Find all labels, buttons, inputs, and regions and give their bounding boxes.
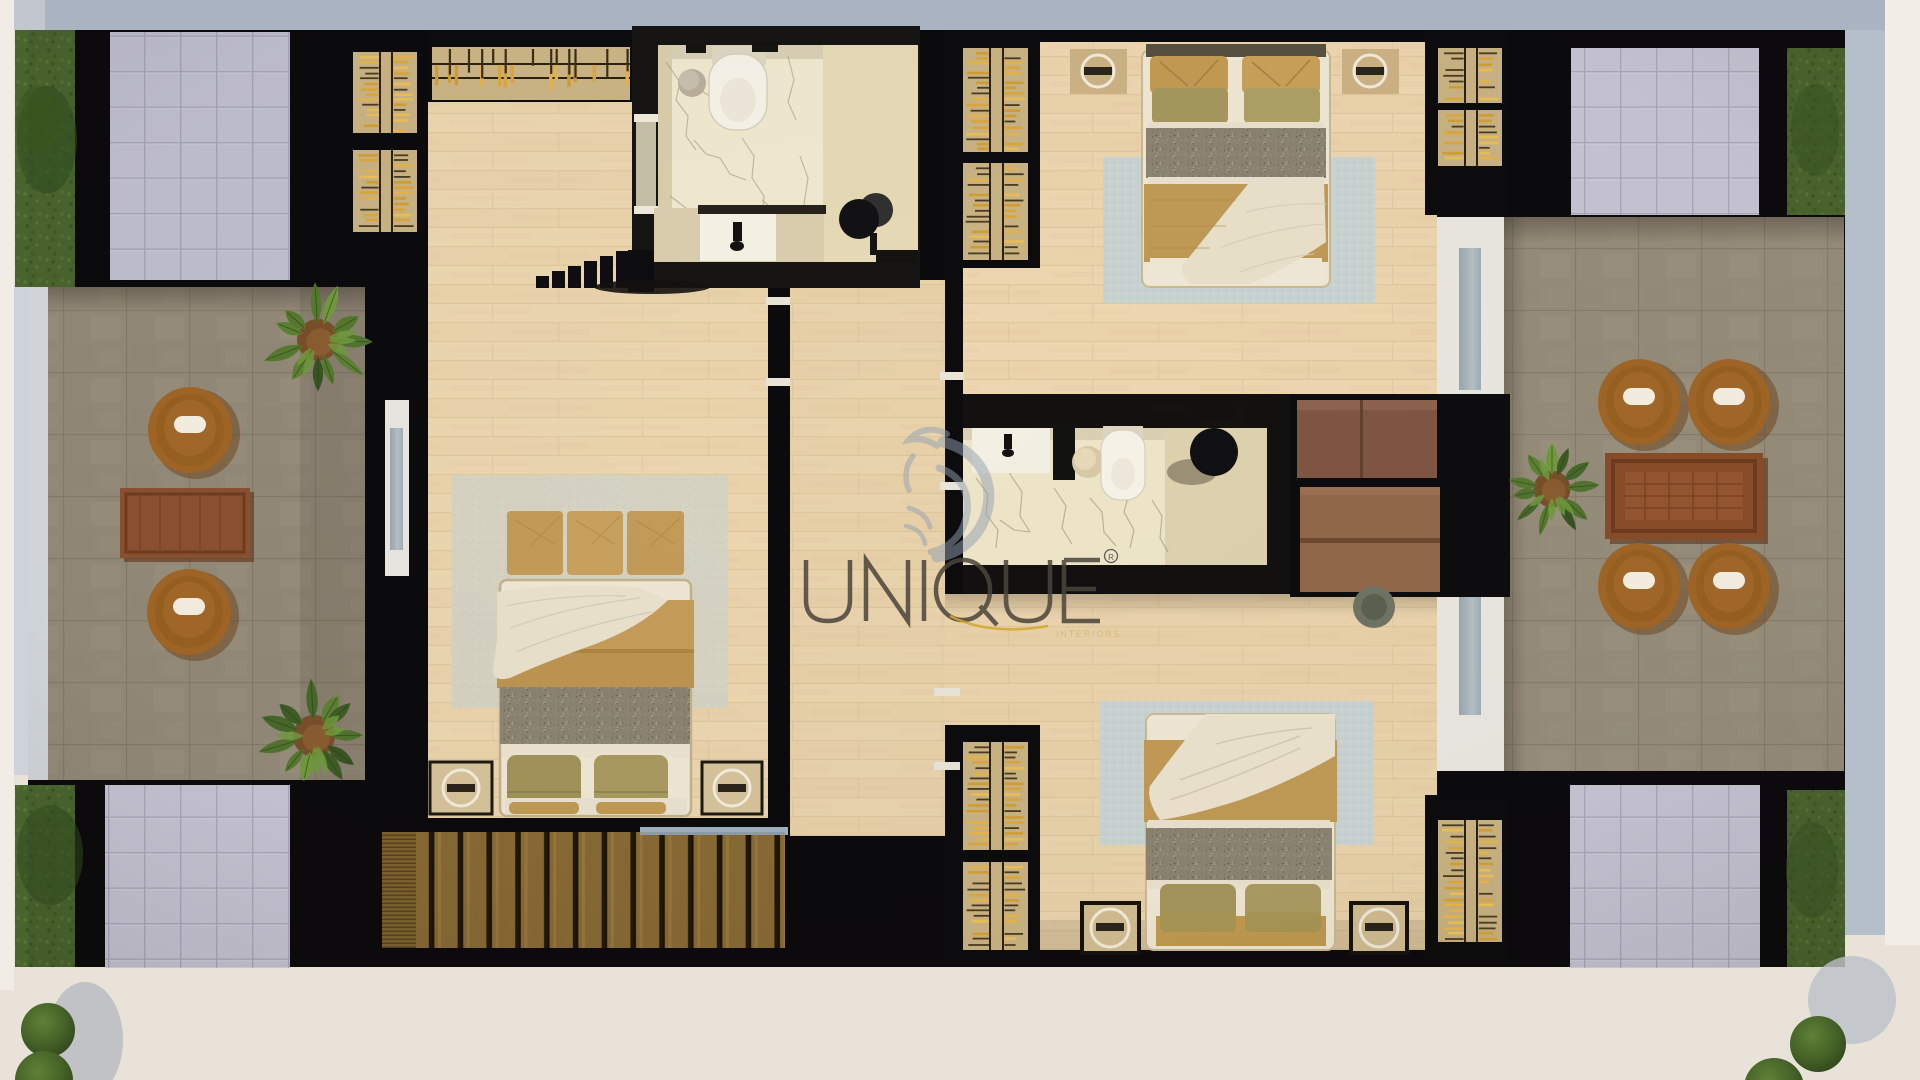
svg-text:INTERIORS: INTERIORS	[1056, 629, 1121, 639]
svg-text:R: R	[1108, 553, 1114, 562]
